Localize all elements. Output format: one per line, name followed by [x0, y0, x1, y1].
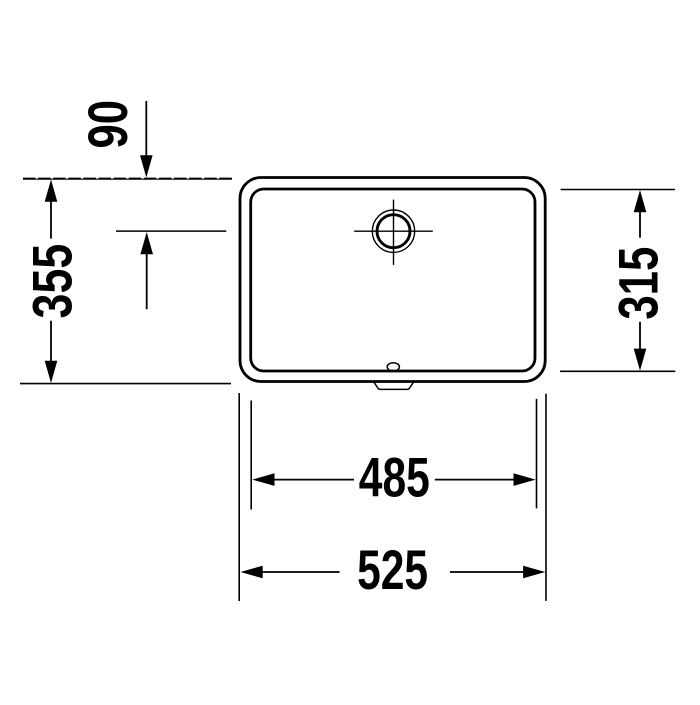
svg-text:485: 485: [359, 446, 430, 509]
svg-text:315: 315: [607, 247, 669, 320]
svg-text:355: 355: [21, 244, 84, 319]
svg-text:525: 525: [357, 538, 428, 601]
svg-text:90: 90: [77, 100, 139, 149]
